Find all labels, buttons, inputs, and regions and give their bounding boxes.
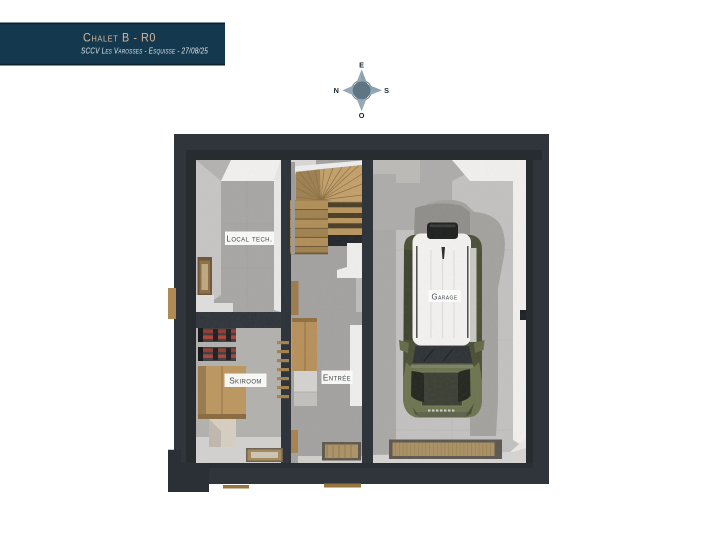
svg-text:Local tech.: Local tech. xyxy=(226,235,272,244)
svg-text:SCCV Les Varosses - Esquisse -: SCCV Les Varosses - Esquisse - 27/08/25 xyxy=(81,47,208,56)
svg-text:Chalet B - R0: Chalet B - R0 xyxy=(83,33,156,45)
svg-text:S: S xyxy=(384,86,389,95)
svg-text:Skiroom: Skiroom xyxy=(229,377,262,386)
svg-text:Garage: Garage xyxy=(432,293,458,302)
svg-text:N: N xyxy=(334,86,339,95)
svg-text:Entrée: Entrée xyxy=(323,374,351,383)
svg-text:E: E xyxy=(359,60,364,69)
svg-text:O: O xyxy=(359,111,365,120)
